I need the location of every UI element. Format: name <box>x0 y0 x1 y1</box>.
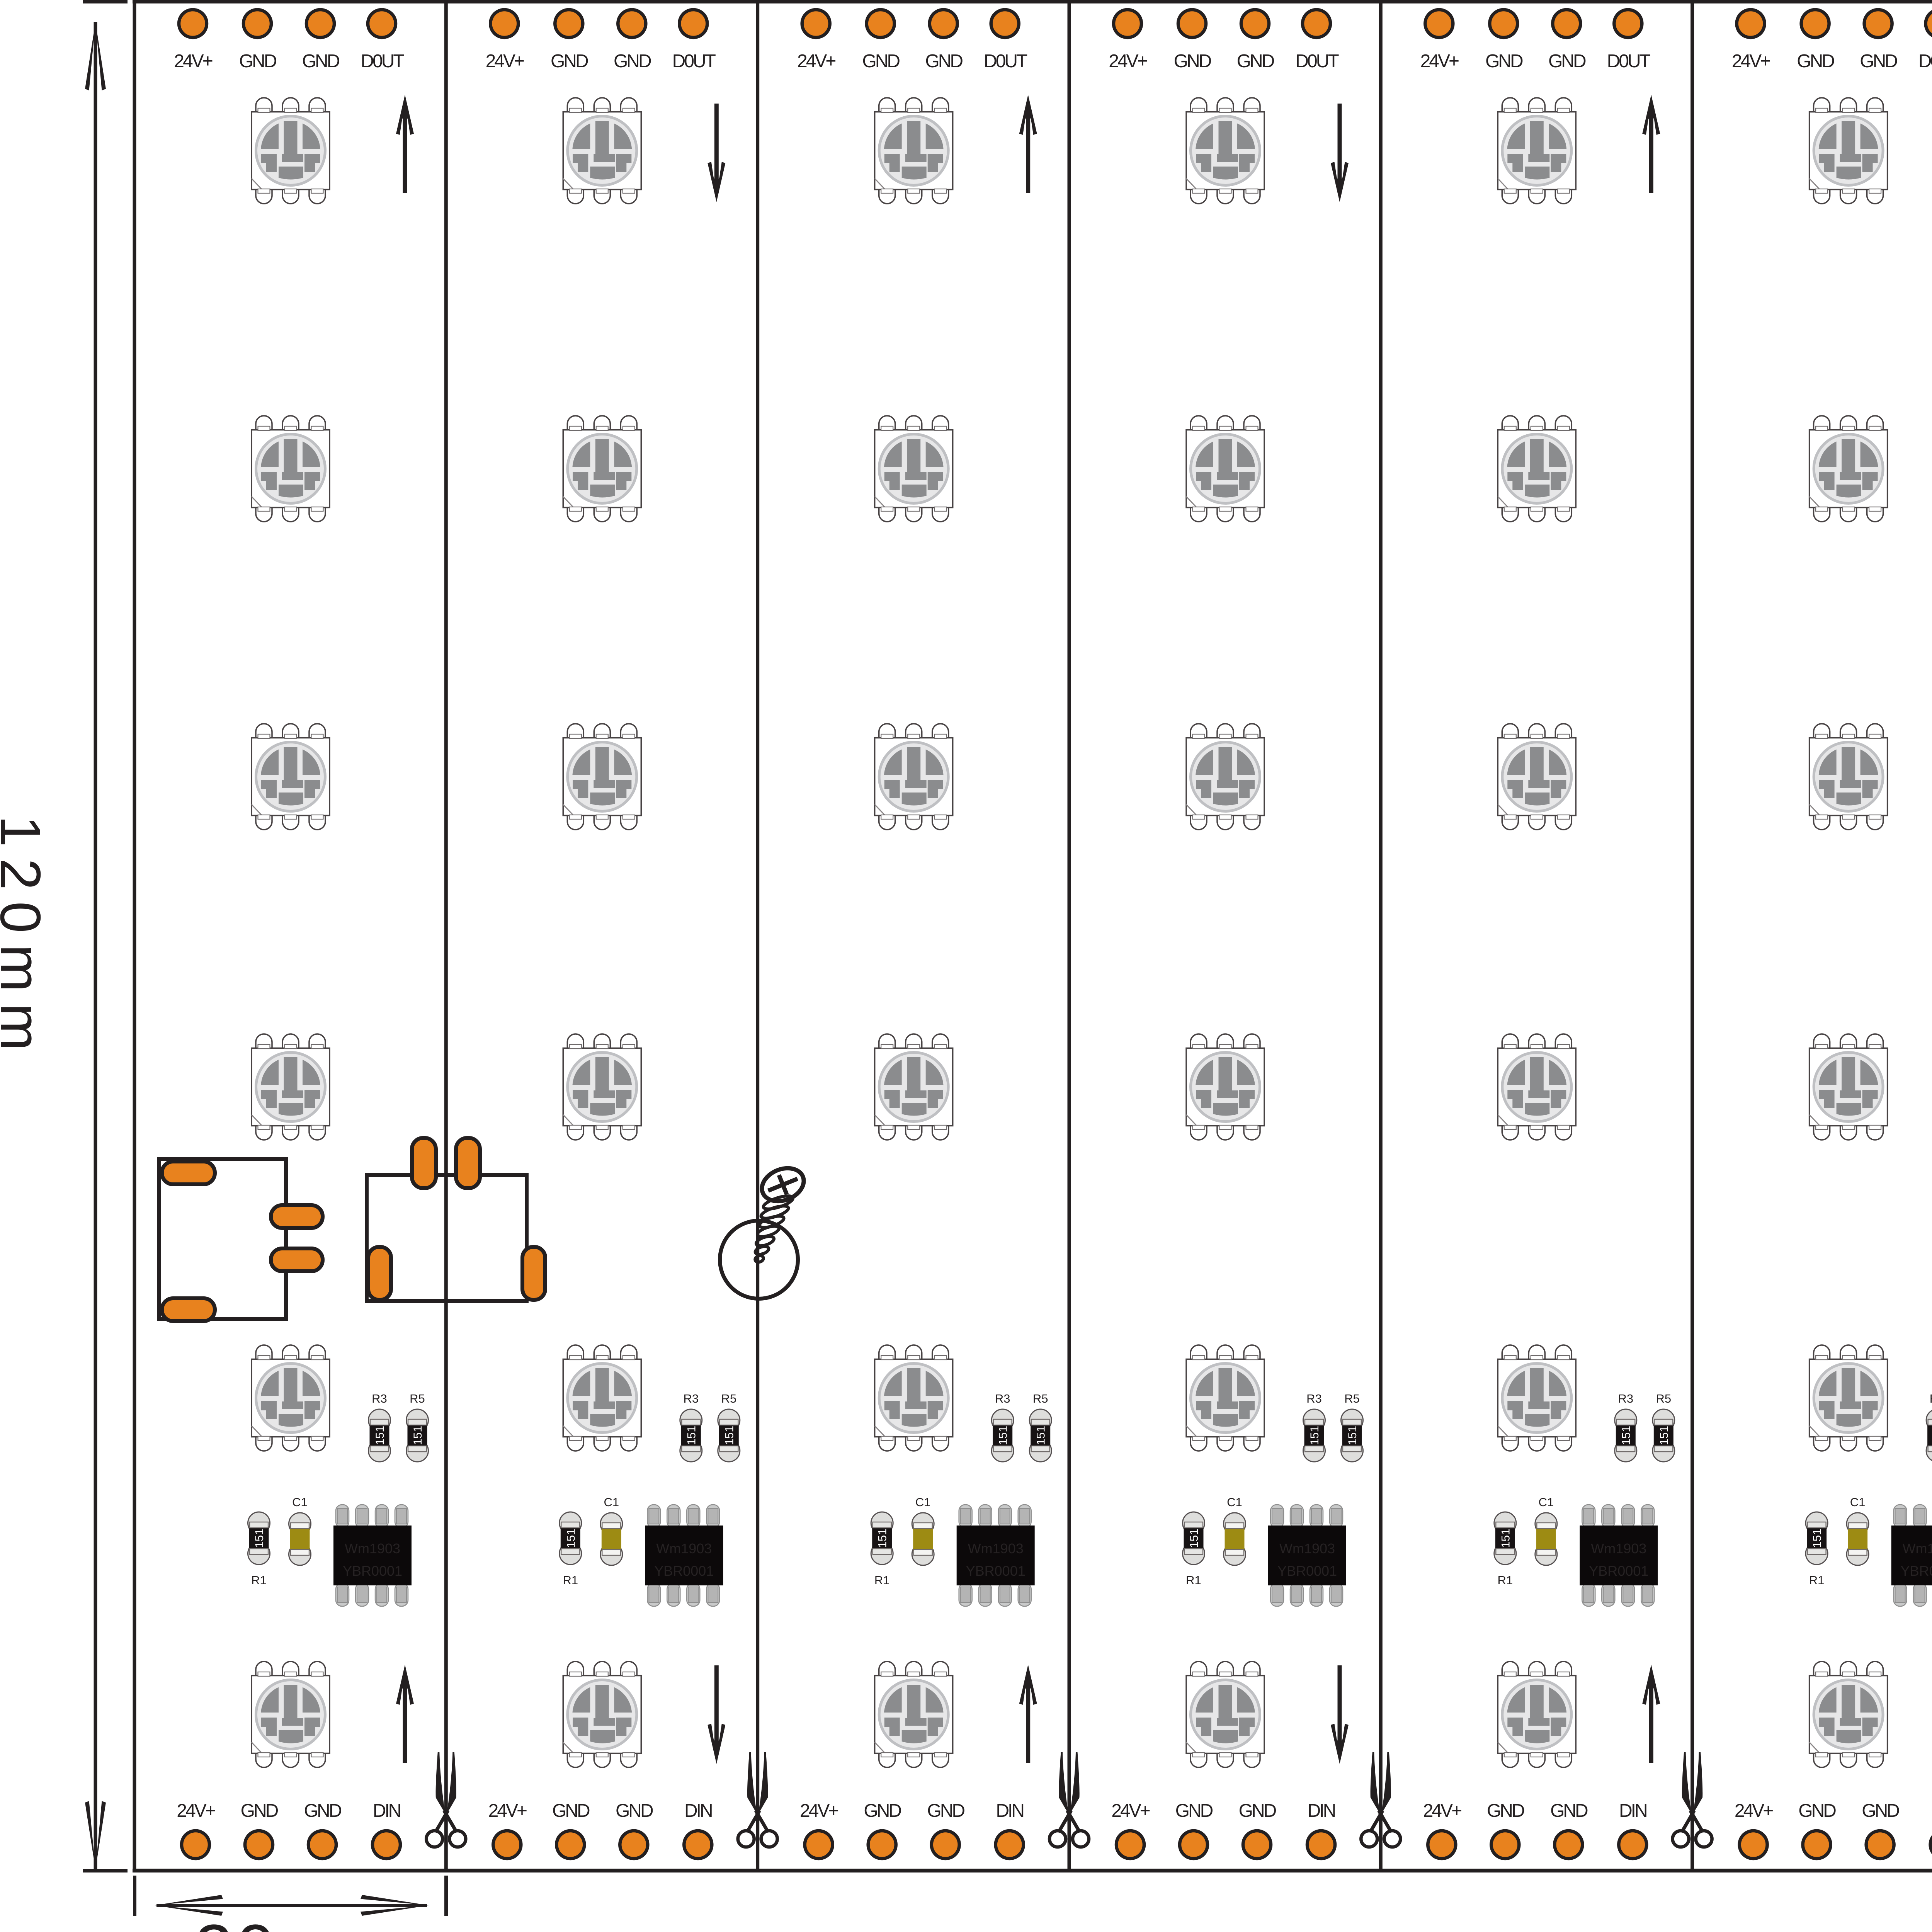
svg-text:D0UT: D0UT <box>672 51 716 71</box>
svg-text:D0UT: D0UT <box>1295 51 1339 71</box>
svg-text:R5: R5 <box>721 1392 736 1405</box>
svg-text:24V+: 24V+ <box>1423 1801 1461 1821</box>
svg-text:C1: C1 <box>1538 1495 1554 1509</box>
svg-text:C1: C1 <box>292 1495 308 1509</box>
svg-text:GND: GND <box>1487 1801 1524 1821</box>
svg-text:GND: GND <box>616 1801 653 1821</box>
svg-text:24V+: 24V+ <box>1732 51 1770 71</box>
svg-text:D0UT: D0UT <box>1607 51 1651 71</box>
svg-text:D0UT: D0UT <box>1918 51 1932 71</box>
svg-text:DIN: DIN <box>1619 1801 1646 1821</box>
svg-text:24V+: 24V+ <box>1111 1801 1150 1821</box>
svg-text:C1: C1 <box>604 1495 619 1509</box>
svg-text:24V+: 24V+ <box>488 1801 527 1821</box>
svg-text:C1: C1 <box>915 1495 931 1509</box>
svg-text:GND: GND <box>864 1801 901 1821</box>
svg-text:GND: GND <box>239 51 277 71</box>
svg-text:24V+: 24V+ <box>800 1801 838 1821</box>
svg-text:R3: R3 <box>995 1392 1010 1405</box>
svg-text:24V+: 24V+ <box>177 1801 215 1821</box>
svg-text:R3: R3 <box>683 1392 699 1405</box>
svg-text:24V+: 24V+ <box>174 51 212 71</box>
svg-text:D0UT: D0UT <box>361 51 404 71</box>
svg-text:24V+: 24V+ <box>1420 51 1459 71</box>
svg-text:GND: GND <box>925 51 963 71</box>
svg-text:24V+: 24V+ <box>1109 51 1147 71</box>
svg-text:DIN: DIN <box>996 1801 1023 1821</box>
svg-text:C1: C1 <box>1850 1495 1866 1509</box>
svg-text:GND: GND <box>927 1801 964 1821</box>
svg-text:R1: R1 <box>1809 1573 1825 1587</box>
svg-text:GND: GND <box>304 1801 342 1821</box>
svg-text:R1: R1 <box>1497 1573 1513 1587</box>
svg-text:24V+: 24V+ <box>797 51 835 71</box>
svg-text:R5: R5 <box>1033 1392 1048 1405</box>
svg-text:R5: R5 <box>410 1392 425 1405</box>
svg-text:GND: GND <box>1175 1801 1213 1821</box>
svg-text:R1: R1 <box>251 1573 267 1587</box>
svg-text:GND: GND <box>862 51 900 71</box>
svg-text:GND: GND <box>1237 51 1274 71</box>
svg-text:24V+: 24V+ <box>1735 1801 1773 1821</box>
svg-text:GND: GND <box>1485 51 1523 71</box>
svg-text:R5: R5 <box>1344 1392 1360 1405</box>
svg-text:GND: GND <box>552 1801 590 1821</box>
svg-text:GND: GND <box>1548 51 1586 71</box>
svg-text:C1: C1 <box>1227 1495 1242 1509</box>
svg-text:120mm: 120mm <box>0 815 52 1062</box>
svg-text:DIN: DIN <box>373 1801 400 1821</box>
svg-text:R1: R1 <box>1186 1573 1201 1587</box>
svg-text:DIN: DIN <box>1308 1801 1335 1821</box>
svg-text:DIN: DIN <box>1930 1801 1932 1821</box>
svg-text:GND: GND <box>1860 51 1897 71</box>
svg-text:DIN: DIN <box>684 1801 712 1821</box>
svg-text:GND: GND <box>1862 1801 1899 1821</box>
svg-text:D0UT: D0UT <box>984 51 1027 71</box>
svg-text:R3: R3 <box>372 1392 387 1405</box>
svg-text:R1: R1 <box>563 1573 578 1587</box>
svg-text:R3: R3 <box>1306 1392 1322 1405</box>
svg-text:GND: GND <box>1550 1801 1588 1821</box>
svg-text:GND: GND <box>551 51 588 71</box>
svg-text:R5: R5 <box>1656 1392 1671 1405</box>
svg-text:24V+: 24V+ <box>486 51 524 71</box>
svg-text:GND: GND <box>241 1801 278 1821</box>
svg-text:R1: R1 <box>874 1573 890 1587</box>
svg-text:20mm: 20mm <box>194 1910 400 1932</box>
svg-text:GND: GND <box>302 51 340 71</box>
svg-text:R3: R3 <box>1930 1392 1932 1405</box>
svg-text:GND: GND <box>614 51 651 71</box>
svg-text:GND: GND <box>1798 1801 1836 1821</box>
svg-text:GND: GND <box>1174 51 1211 71</box>
svg-text:GND: GND <box>1239 1801 1276 1821</box>
svg-text:R3: R3 <box>1618 1392 1633 1405</box>
svg-text:GND: GND <box>1797 51 1834 71</box>
